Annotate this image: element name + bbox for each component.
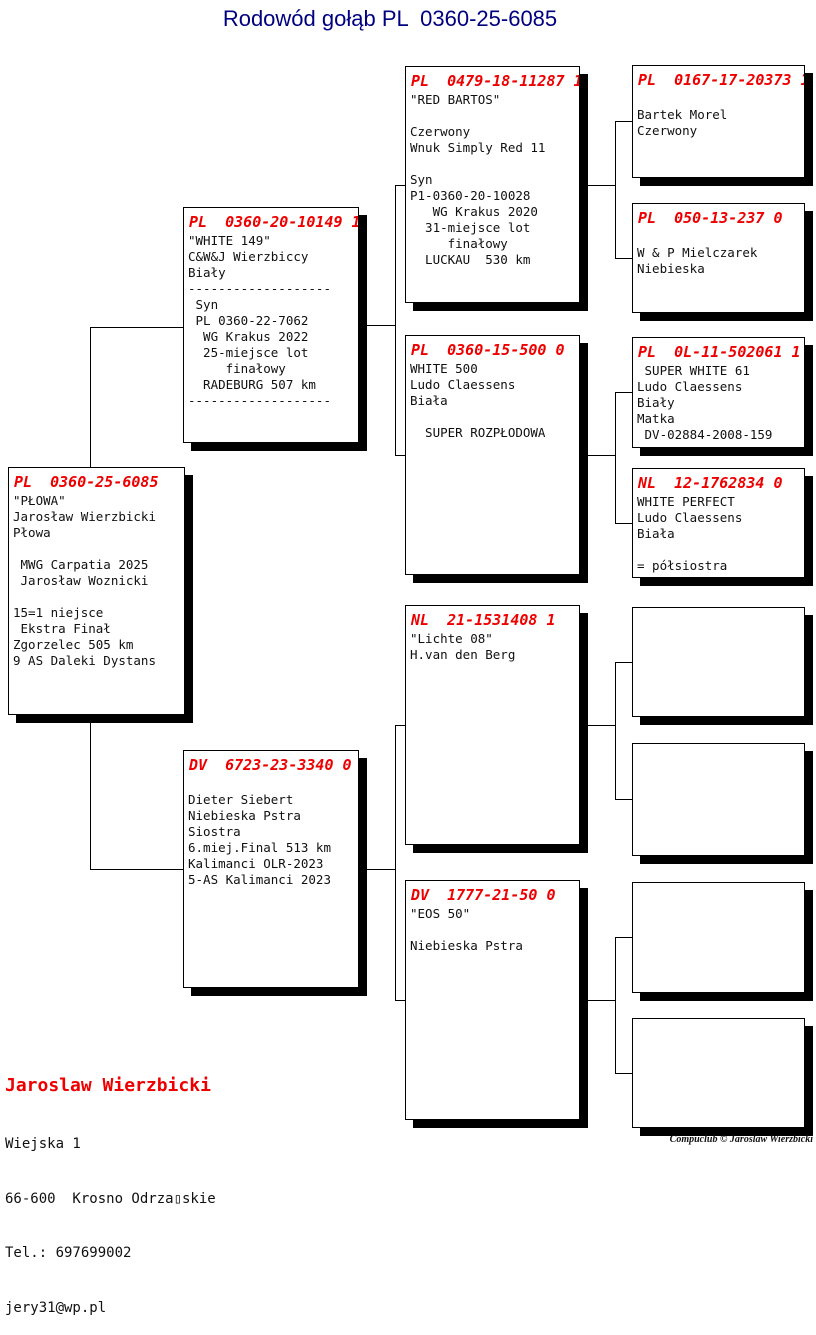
connector-line <box>615 799 632 800</box>
box-great-grandparent-4: NL 12-1762834 0 WHITE PERFECT Ludo Claes… <box>632 468 805 578</box>
ring-number: DV 1777-21-50 0 <box>406 881 579 906</box>
connector-line <box>90 869 183 870</box>
connector-line <box>615 121 632 122</box>
connector-line <box>395 725 405 726</box>
connector-line <box>615 937 616 1073</box>
connector-line <box>588 1000 615 1001</box>
ring-number: PL 0479-18-11287 1 <box>406 67 579 92</box>
owner-name: Jaroslaw Wierzbicki <box>5 1074 216 1098</box>
ring-number <box>633 1019 804 1024</box>
connector-line <box>615 662 632 663</box>
ring-number: PL 0L-11-502061 1 <box>633 338 804 363</box>
connector-line <box>395 185 405 186</box>
owner-phone: Tel.: 697699002 <box>5 1245 216 1262</box>
page-title: Rodowód gołąb PL 0360-25-6085 <box>0 6 780 32</box>
software-credit: Compuclub © Jaroslaw Wierzbicki <box>670 1134 813 1145</box>
ring-number: PL 0360-25-6085 <box>9 468 184 493</box>
box-mother: DV 6723-23-3340 0 Dieter Siebert Niebies… <box>183 750 359 988</box>
box-grandmother-paternal: PL 0360-15-500 0 WHITE 500 Ludo Claessen… <box>405 335 580 575</box>
box-great-grandparent-2: PL 050-13-237 0 W & P Mielczarek Niebies… <box>632 203 805 313</box>
connector-line <box>395 455 405 456</box>
bird-details: WHITE 500 Ludo Claessens Biała SUPER ROZ… <box>406 361 579 441</box>
connector-line <box>395 185 396 455</box>
bird-details: SUPER WHITE 61 Ludo Claessens Biały Matk… <box>633 363 804 443</box>
ring-number: PL 0360-20-10149 1 <box>184 208 358 233</box>
connector-line <box>90 327 91 467</box>
bird-details: WHITE PERFECT Ludo Claessens Biała = pół… <box>633 494 804 574</box>
connector-line <box>90 327 183 328</box>
ring-number: DV 6723-23-3340 0 <box>184 751 358 776</box>
box-great-grandparent-5-empty <box>632 607 805 717</box>
box-great-grandparent-6-empty <box>632 743 805 856</box>
ring-number <box>633 883 804 888</box>
box-great-grandparent-3: PL 0L-11-502061 1 SUPER WHITE 61 Ludo Cl… <box>632 337 805 448</box>
connector-line <box>615 1073 632 1074</box>
bird-details: Dieter Siebert Niebieska Pstra Siostra 6… <box>184 776 358 888</box>
bird-details: "EOS 50" Niebieska Pstra <box>406 906 579 954</box>
connector-line <box>588 185 615 186</box>
box-grandmother-maternal: DV 1777-21-50 0 "EOS 50" Niebieska Pstra <box>405 880 580 1120</box>
ring-number <box>633 608 804 613</box>
box-great-grandparent-8-empty <box>632 1018 805 1128</box>
owner-footer: Jaroslaw Wierzbicki Wiejska 1 66-600 Kro… <box>5 1036 216 1335</box>
connector-line <box>395 725 396 1000</box>
bird-details: "WHITE 149" C&W&J Wierzbiccy Biały -----… <box>184 233 358 409</box>
box-father: PL 0360-20-10149 1 "WHITE 149" C&W&J Wie… <box>183 207 359 443</box>
box-great-grandparent-7-empty <box>632 882 805 993</box>
connector-line <box>588 455 615 456</box>
connector-line <box>615 523 632 524</box>
connector-line <box>615 392 632 393</box>
bird-details: "Lichte 08" H.van den Berg <box>406 631 579 663</box>
connector-line <box>90 715 91 869</box>
connector-line <box>615 121 616 258</box>
owner-address-line1: Wiejska 1 <box>5 1136 216 1153</box>
connector-line <box>615 937 632 938</box>
bird-details: W & P Mielczarek Niebieska <box>633 229 804 277</box>
bird-details: Bartek Morel Czerwony <box>633 91 804 139</box>
connector-line <box>615 662 616 799</box>
owner-address-line2: 66-600 Krosno Odrza▯skie <box>5 1191 216 1208</box>
connector-line <box>588 725 615 726</box>
ring-number: PL 0360-15-500 0 <box>406 336 579 361</box>
connector-line <box>395 1000 405 1001</box>
box-subject-bird: PL 0360-25-6085 "PŁOWA" Jarosław Wierzbi… <box>8 467 185 715</box>
box-grandfather-paternal: PL 0479-18-11287 1 "RED BARTOS" Czerwony… <box>405 66 580 303</box>
connector-line <box>367 869 395 870</box>
connector-line <box>367 325 395 326</box>
ring-number: PL 0167-17-20373 1 <box>633 66 804 91</box>
connector-line <box>615 258 632 259</box>
owner-email: jery31@wp.pl <box>5 1300 216 1317</box>
bird-details: "RED BARTOS" Czerwony Wnuk Simply Red 11… <box>406 92 579 268</box>
ring-number: PL 050-13-237 0 <box>633 204 804 229</box>
ring-number <box>633 744 804 749</box>
box-grandfather-maternal: NL 21-1531408 1 "Lichte 08" H.van den Be… <box>405 605 580 845</box>
ring-number: NL 21-1531408 1 <box>406 606 579 631</box>
box-great-grandparent-1: PL 0167-17-20373 1 Bartek Morel Czerwony <box>632 65 805 178</box>
bird-details: "PŁOWA" Jarosław Wierzbicki Płowa MWG Ca… <box>9 493 184 669</box>
ring-number: NL 12-1762834 0 <box>633 469 804 494</box>
connector-line <box>615 392 616 523</box>
